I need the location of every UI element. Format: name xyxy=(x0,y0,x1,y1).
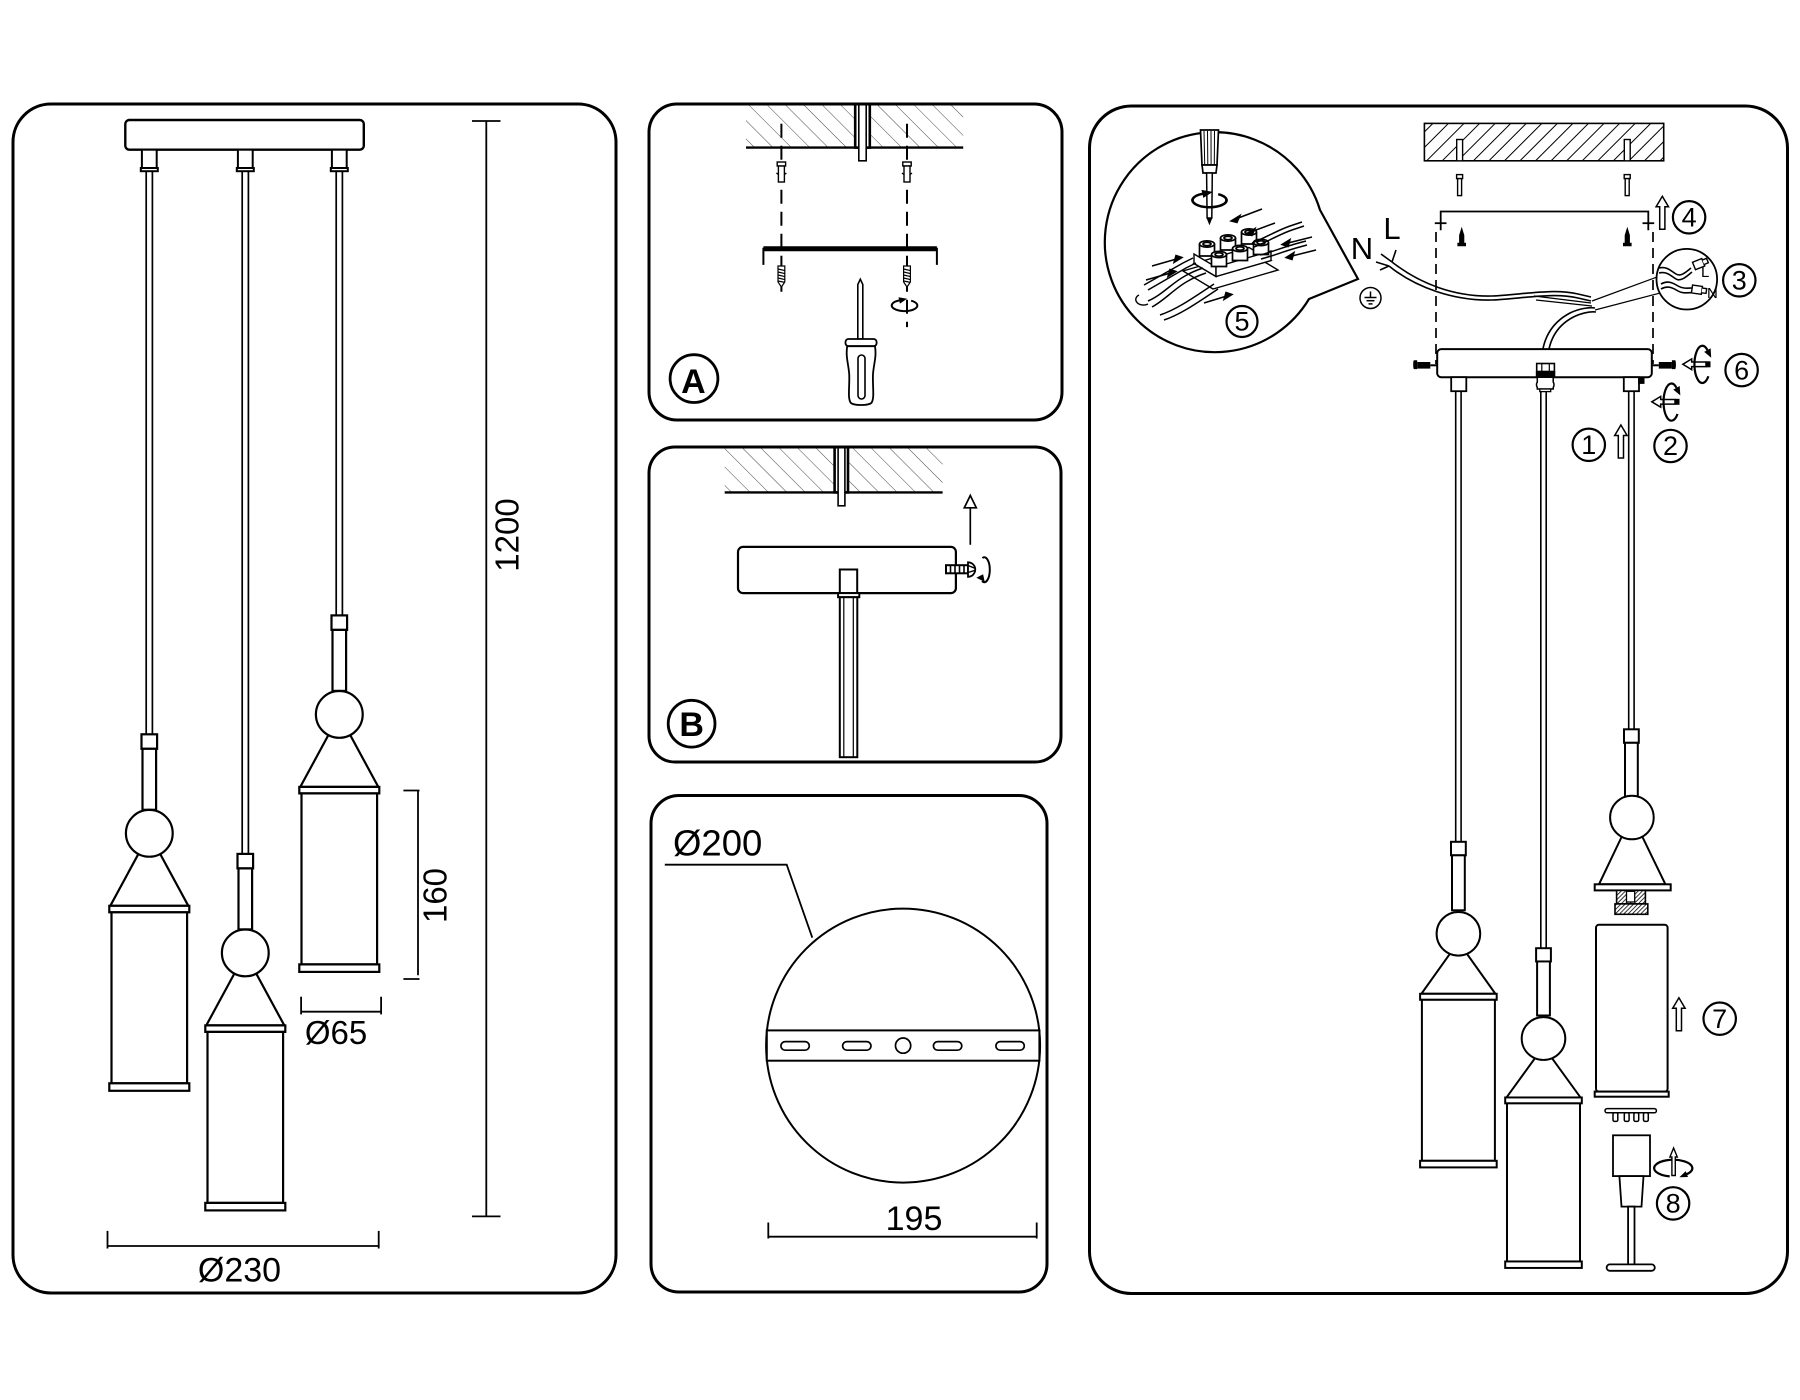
svg-text:3: 3 xyxy=(1732,266,1747,296)
svg-text:L: L xyxy=(1383,211,1400,246)
svg-text:Ø65: Ø65 xyxy=(305,1014,367,1051)
svg-text:4: 4 xyxy=(1682,203,1697,233)
svg-text:160: 160 xyxy=(417,868,454,923)
svg-text:6: 6 xyxy=(1734,355,1749,385)
svg-text:L: L xyxy=(1701,264,1709,281)
svg-text:195: 195 xyxy=(886,1200,943,1238)
svg-text:1: 1 xyxy=(1581,430,1596,460)
svg-text:B: B xyxy=(679,706,704,744)
svg-text:N: N xyxy=(1707,285,1718,302)
svg-text:Ø230: Ø230 xyxy=(198,1252,281,1290)
svg-text:A: A xyxy=(681,363,706,401)
svg-text:1200: 1200 xyxy=(489,498,526,571)
svg-text:8: 8 xyxy=(1666,1189,1681,1219)
svg-text:Ø200: Ø200 xyxy=(673,823,762,864)
svg-text:N: N xyxy=(1351,231,1373,266)
svg-text:7: 7 xyxy=(1712,1004,1727,1034)
svg-text:2: 2 xyxy=(1663,431,1678,461)
svg-text:5: 5 xyxy=(1234,307,1249,337)
